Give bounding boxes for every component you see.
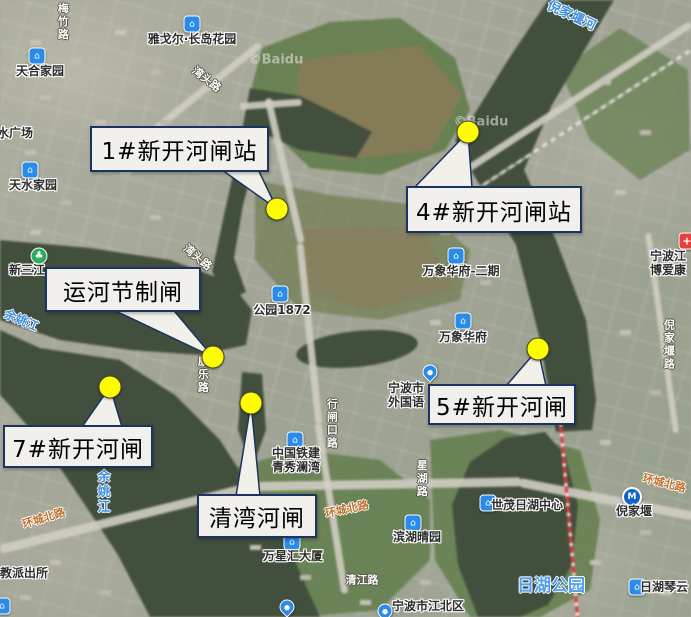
building-glyph: ⌂ — [34, 51, 40, 61]
callout-canal-control-gate: 运河节制闸 — [45, 267, 201, 312]
poi-tianshui-jiayuan-icon[interactable]: ⌂ — [22, 162, 39, 179]
poi-wanxiang-huafu-label: 万象华府 — [439, 331, 487, 345]
callout-gate5: 5#新开河闸 — [428, 384, 576, 425]
building-glyph: ⌂ — [0, 601, 5, 611]
poi-xinsanjiang-label: 新三江 — [9, 264, 45, 278]
poi-binhu-qingyuan: 滨湖晴园 — [393, 531, 441, 545]
poi-binhu-qingyuan-icon[interactable]: ⌂ — [405, 515, 422, 532]
poi-ningbo-jiangbei-district: 宁波市江北区 — [392, 600, 464, 614]
poi-nijiayan-metro-station: 倪家堰 — [616, 505, 652, 519]
poi-boai-hospital-icon[interactable]: + — [679, 233, 691, 250]
marker-dot-gate7[interactable] — [99, 376, 122, 399]
poi-wanxiang-huafu-phase2-label: 万象华府-二期 — [423, 265, 500, 279]
marker-dot-gate5[interactable] — [527, 338, 550, 361]
poi-yageer-changdao-garden: 雅戈尔·长岛花园 — [148, 33, 237, 47]
poi-rihu-qinyun: 日湖琴云 — [640, 581, 688, 595]
poi-gongyuan-1872-label: 公园1872 — [253, 304, 310, 318]
road-xingzhakou: 行闸口路 — [325, 398, 338, 450]
baidu-watermark-1: ©Baidu — [249, 53, 304, 68]
poi-zhongguo-tiejian-qingxiu-lanwan-label: 青秀澜湾 — [272, 461, 320, 475]
poi-shimao-rihu-center-label: 世茂日湖中心 — [491, 499, 563, 513]
building-glyph: ⌂ — [27, 165, 33, 175]
road-meizhu: 梅竹路 — [56, 3, 69, 42]
poi-boai-hospital: 宁波江博爱康 — [650, 250, 686, 278]
poi-tianshui-jiayuan: 天水家园 — [9, 179, 57, 193]
poi-binhu-qingyuan-label: 滨湖晴园 — [393, 531, 441, 545]
poi-wenjiao-police-station: 文教派出所 — [0, 567, 48, 581]
road-xinghu: 星湖路 — [415, 460, 428, 499]
poi-gongyuan-1872: 公园1872 — [253, 304, 310, 318]
building-glyph: ⌂ — [189, 19, 195, 29]
park-rihu-gongyuan: 日湖公园 — [517, 577, 585, 597]
poi-shimao-rihu-center: 世茂日湖中心 — [491, 499, 563, 513]
poi-rihu-qinyun-label: 日湖琴云 — [640, 581, 688, 595]
poi-tianhe-jiayuan-icon[interactable]: ⌂ — [29, 48, 46, 65]
poi-wanxinghui-tower-label: 万星汇大厦 — [263, 550, 323, 564]
poi-tianshui-guangchang: 天水广场 — [0, 127, 33, 141]
building-glyph: ⌂ — [277, 289, 283, 299]
building-blocks — [0, 0, 11, 5]
callout-qingwan-gate: 清湾河闸 — [197, 494, 317, 538]
poi-zhongguo-tiejian-qingxiu-lanwan-label: 中国铁建 — [272, 447, 320, 461]
poi-wanxiang-huafu: 万象华府 — [439, 331, 487, 345]
poi-wanxiang-huafu-icon[interactable]: ⌂ — [455, 313, 472, 330]
poi-tianshui-jiayuan-label: 天水家园 — [9, 179, 57, 193]
pin-glyph: ● — [382, 607, 388, 615]
park-glyph: ♣ — [35, 251, 44, 262]
poi-xinsanjiang: 新三江 — [9, 264, 45, 278]
poi-ningbo-foreign-language-school: 宁波市外国语 — [388, 382, 424, 410]
poi-ningbo-foreign-language-school-label: 宁波市 — [388, 382, 424, 396]
building-glyph: ⌂ — [410, 518, 416, 528]
baidu-satellite-map: ©Baidu©Baidu倪家堰河余姚江余姚江日湖公园环城北路环城北路环城北路梅竹… — [0, 0, 691, 617]
poi-zhongguo-tiejian-qingxiu-lanwan: 中国铁建青秀澜湾 — [272, 447, 320, 475]
metro-glyph: M — [628, 492, 637, 502]
poi-xinsanjiang-icon[interactable]: ♣ — [31, 248, 48, 265]
callout-gate7: 7#新开河闸 — [3, 425, 153, 468]
building-glyph: ⌂ — [289, 537, 295, 547]
poi-wanxiang-huafu-phase2: 万象华府-二期 — [423, 265, 500, 279]
pin-glyph: ● — [427, 368, 433, 376]
poi-boai-hospital-label: 宁波江 — [650, 250, 686, 264]
poi-tianhe-jiayuan-label: 天合家园 — [16, 65, 64, 79]
poi-wanxinghui-tower: 万星汇大厦 — [263, 550, 323, 564]
marker-dot-gate1[interactable] — [266, 198, 289, 221]
poi-wanxiang-huafu-phase2-icon[interactable]: ⌂ — [448, 248, 465, 265]
poi-tianhe-jiayuan: 天合家园 — [16, 65, 64, 79]
poi-boai-hospital-label: 博爱康 — [650, 264, 686, 278]
poi-yageer-changdao-garden-icon[interactable]: ⌂ — [184, 16, 201, 33]
marker-dot-gate4[interactable] — [457, 121, 480, 144]
callout-gate1: 1#新开河闸站 — [90, 126, 269, 172]
poi-nijiayan-metro-station-label: 倪家堰 — [616, 505, 652, 519]
callout-gate4: 4#新开河闸站 — [406, 186, 582, 233]
building-glyph: ⌂ — [292, 435, 298, 445]
poi-tianshui-guangchang-label: 天水广场 — [0, 127, 33, 141]
poi-ningbo-foreign-language-school-label: 外国语 — [388, 396, 424, 410]
poi-gongyuan-1872-icon[interactable]: ⌂ — [272, 286, 289, 303]
hospital-glyph: + — [682, 235, 691, 248]
poi-corner-southwest-icon[interactable]: ⌂ — [0, 598, 11, 615]
poi-ningbo-jiangbei-district-label: 宁波市江北区 — [392, 600, 464, 614]
marker-dot-qingwan-gate[interactable] — [240, 392, 263, 415]
road-qingjiang: 清江路 — [346, 575, 379, 588]
pin-glyph: ● — [284, 603, 290, 611]
poi-yageer-changdao-garden-label: 雅戈尔·长岛花园 — [148, 33, 237, 47]
marker-dot-canal-control-gate[interactable] — [202, 346, 225, 369]
building-glyph: ⌂ — [460, 316, 466, 326]
road-nijiayan: 倪家堰路 — [662, 319, 675, 371]
river-yuyaojiang-south: 余姚江 — [94, 470, 109, 515]
building-glyph: ⌂ — [453, 251, 459, 261]
